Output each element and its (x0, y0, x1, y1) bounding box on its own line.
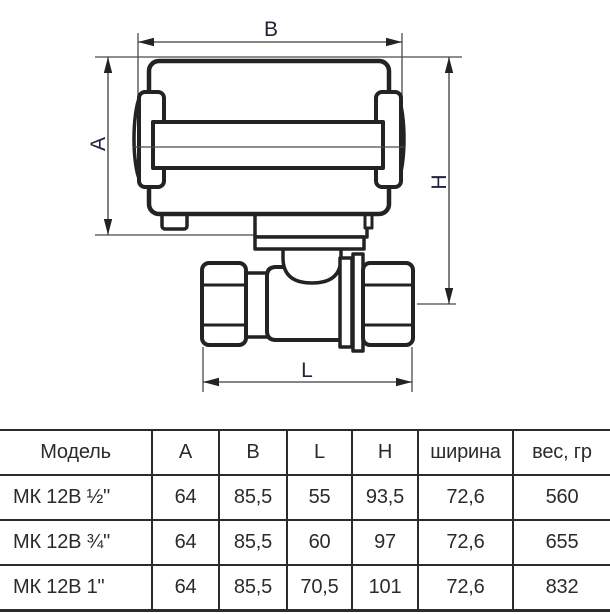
valve-spec-sheet: B A H L Модель A B L H ширина вес, гр (0, 0, 610, 614)
right-nut (363, 263, 413, 345)
table-row: МК 12В 1" 64 85,5 70,5 101 72,6 832 (0, 565, 610, 611)
dimension-label-l: L (301, 359, 313, 382)
table-cell: 85,5 (219, 520, 287, 565)
dimensions-table: Модель A B L H ширина вес, гр МК 12В ½" … (0, 429, 610, 612)
table-row: МК 12В ¾" 64 85,5 60 97 72,6 655 (0, 520, 610, 565)
table-cell: 55 (287, 475, 352, 520)
table-cell: 72,6 (418, 565, 513, 611)
table-cell: 72,6 (418, 520, 513, 565)
front-band (153, 122, 383, 168)
table-cell: 64 (152, 520, 219, 565)
column-header-width: ширина (418, 430, 513, 475)
header-row: Модель A B L H ширина вес, гр (0, 430, 610, 475)
column-header-l: L (287, 430, 352, 475)
table-cell: 72,6 (418, 475, 513, 520)
actuator-drawing (134, 61, 404, 237)
table-cell: 64 (152, 565, 219, 611)
table-cell: 85,5 (219, 565, 287, 611)
model-name-cell: МК 12В ¾" (0, 520, 152, 565)
table-cell: 60 (287, 520, 352, 565)
dimension-label-a: A (87, 137, 110, 151)
table-cell: 85,5 (219, 475, 287, 520)
model-name-cell: МК 12В ½" (0, 475, 152, 520)
column-header-model: Модель (0, 430, 152, 475)
model-name-cell: МК 12В 1" (0, 565, 152, 611)
left-nut (202, 263, 246, 345)
valve-technical-drawing: B A H L (0, 0, 610, 430)
table-cell: 64 (152, 475, 219, 520)
column-header-weight: вес, гр (513, 430, 610, 475)
table-cell: 70,5 (287, 565, 352, 611)
table-cell: 655 (513, 520, 610, 565)
table-cell: 560 (513, 475, 610, 520)
dimensions-table-container: Модель A B L H ширина вес, гр МК 12В ½" … (0, 429, 610, 612)
dimension-label-h: H (428, 174, 451, 189)
dimension-label-b: B (264, 18, 278, 41)
column-header-b: B (219, 430, 287, 475)
union-ring-inner (340, 258, 352, 347)
column-header-a: A (152, 430, 219, 475)
table-cell: 832 (513, 565, 610, 611)
bracket-flange (255, 237, 364, 249)
table-row: МК 12В ½" 64 85,5 55 93,5 72,6 560 (0, 475, 610, 520)
table-cell: 97 (352, 520, 418, 565)
valve-body-drawing (202, 237, 413, 351)
table-cell: 101 (352, 565, 418, 611)
column-header-h: H (352, 430, 418, 475)
table-cell: 93,5 (352, 475, 418, 520)
